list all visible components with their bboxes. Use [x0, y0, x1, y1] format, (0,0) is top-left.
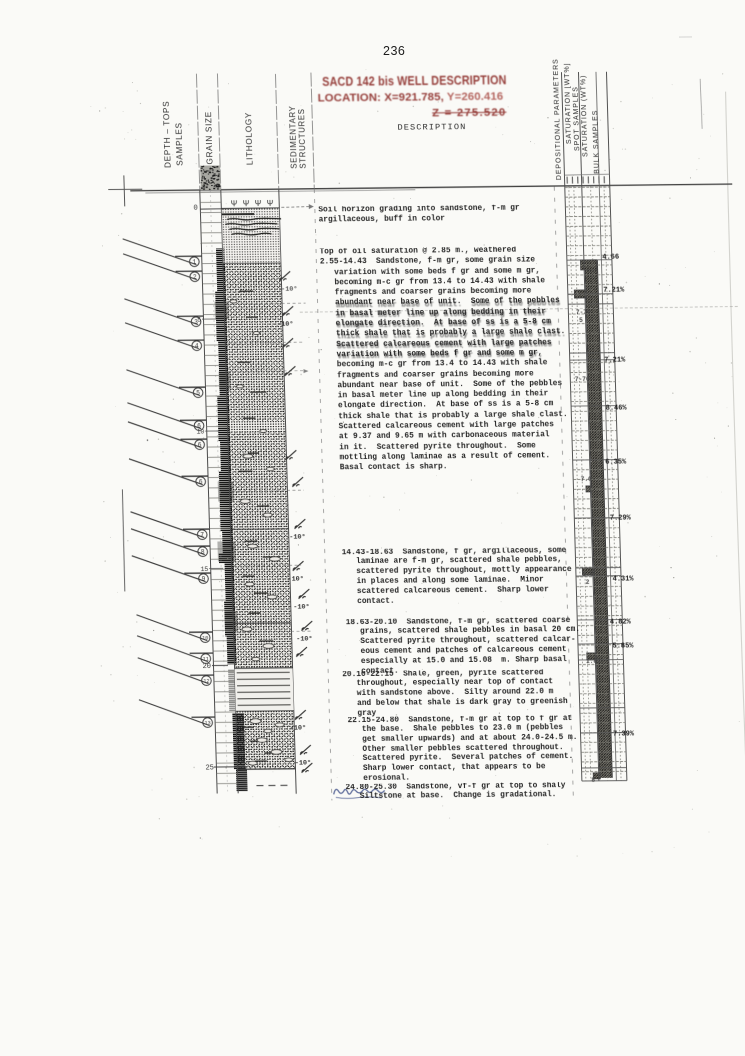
svg-text:5.85%: 5.85% — [612, 642, 634, 650]
svg-text:-10°: -10° — [296, 635, 313, 644]
svg-text:6: 6 — [197, 423, 201, 430]
svg-text:5.0: 5.0 — [582, 571, 594, 578]
svg-text:-10°: -10° — [281, 285, 298, 294]
svg-text:-10°: -10° — [293, 603, 310, 612]
svg-text:7.29%: 7.29% — [610, 515, 632, 523]
svg-text:Ψ: Ψ — [243, 199, 250, 208]
svg-text:Ψ: Ψ — [267, 199, 274, 208]
svg-text:13: 13 — [204, 721, 210, 727]
svg-text:6: 6 — [198, 442, 202, 449]
svg-text:15: 15 — [201, 566, 209, 573]
svg-text:25: 25 — [205, 765, 214, 773]
svg-text:7.21%: 7.21% — [604, 357, 626, 365]
svg-text:Ψ: Ψ — [255, 199, 262, 208]
svg-text:6.35%: 6.35% — [605, 459, 627, 467]
svg-text:20: 20 — [203, 663, 212, 671]
svg-text:-10°: -10° — [289, 533, 306, 542]
svg-text:10: 10 — [202, 636, 208, 642]
svg-text:Ψ: Ψ — [231, 199, 238, 208]
svg-text:8: 8 — [591, 777, 595, 784]
svg-text:0: 0 — [194, 205, 198, 213]
svg-text:-10°: -10° — [277, 320, 294, 329]
svg-text:5: 5 — [196, 390, 200, 397]
svg-text:4.31%: 4.31% — [612, 575, 634, 583]
svg-text:7-70: 7-70 — [575, 376, 590, 383]
svg-text:12: 12 — [203, 679, 209, 685]
svg-text:1.87: 1.87 — [586, 658, 601, 665]
svg-text:4: 4 — [195, 343, 199, 350]
svg-text:-10°: -10° — [290, 724, 307, 733]
svg-text:1: 1 — [192, 259, 196, 266]
svg-text:2: 2 — [193, 274, 197, 281]
svg-text:4.82%: 4.82% — [610, 619, 632, 627]
svg-text:5: 5 — [579, 317, 583, 324]
svg-text:2: 2 — [586, 579, 590, 586]
svg-text:9: 9 — [202, 576, 206, 583]
svg-text:7.39%: 7.39% — [613, 730, 635, 738]
svg-text:-10°: -10° — [287, 575, 304, 584]
svg-text:8: 8 — [201, 549, 205, 556]
svg-text:7.0: 7.0 — [581, 476, 593, 483]
svg-text:8.46%: 8.46% — [606, 405, 628, 413]
svg-text:7.21%: 7.21% — [603, 287, 625, 295]
svg-text:11: 11 — [203, 657, 209, 663]
svg-text:3: 3 — [194, 319, 198, 326]
svg-text:4.66: 4.66 — [602, 254, 619, 262]
svg-text:7-70: 7-70 — [576, 309, 591, 316]
svg-text:6: 6 — [199, 479, 203, 486]
svg-text:7: 7 — [200, 532, 204, 539]
